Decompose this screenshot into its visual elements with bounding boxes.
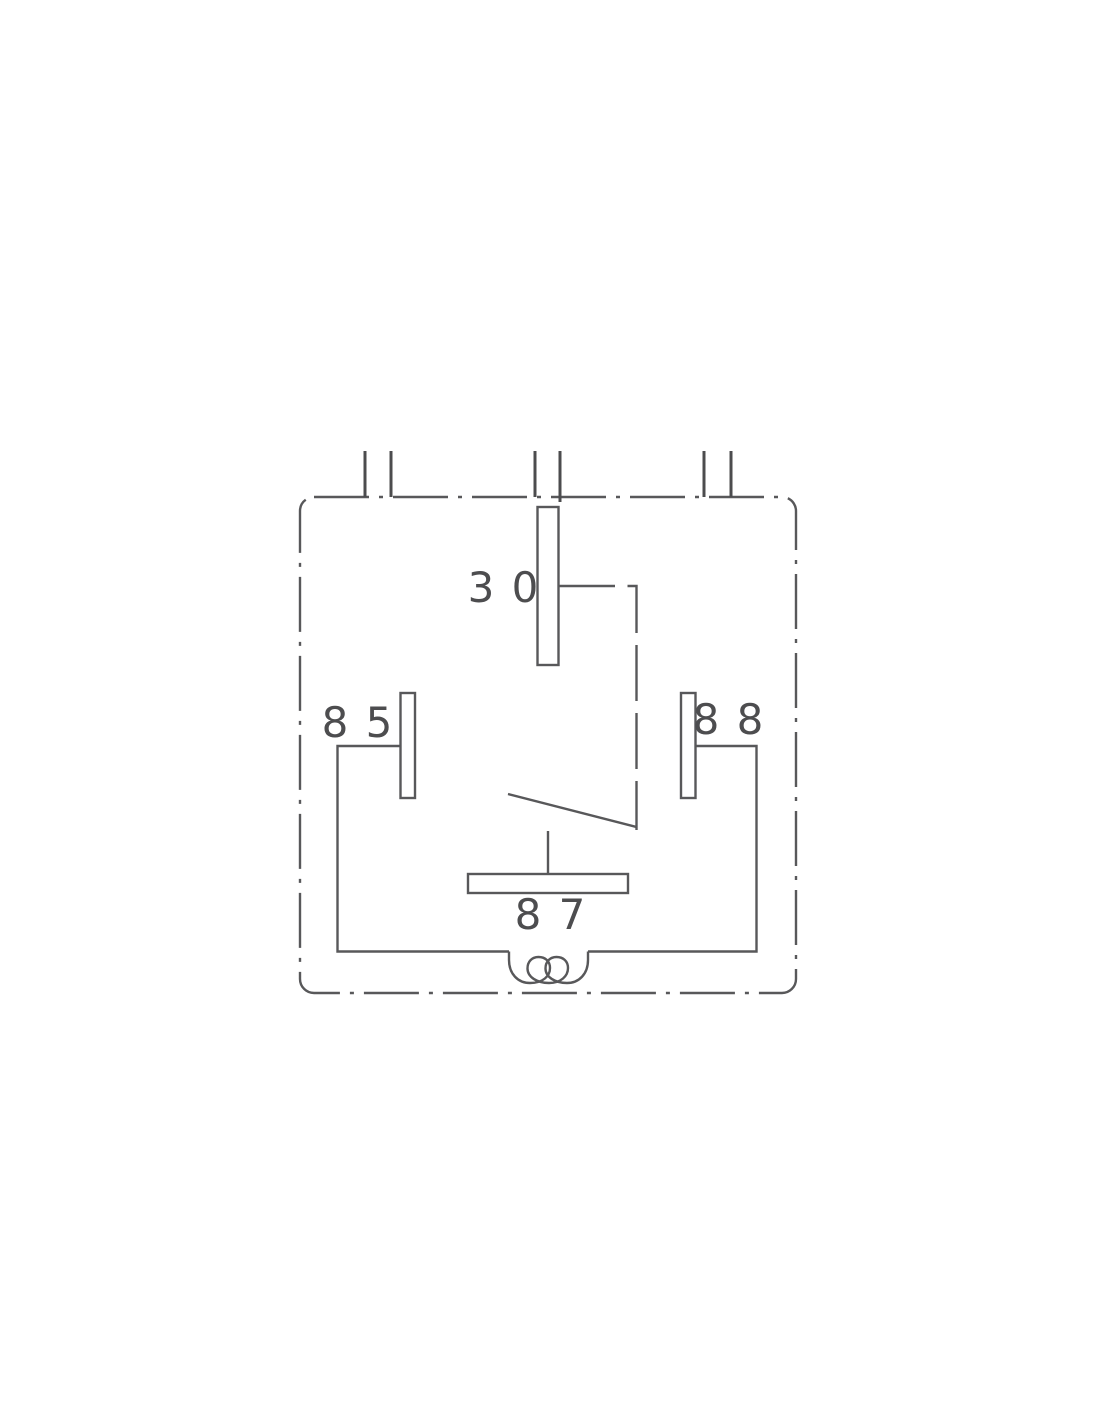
- terminal-85: 8 5: [322, 693, 509, 952]
- pin-stubs: [365, 451, 731, 502]
- terminal-87-label: 8 7: [515, 890, 588, 939]
- terminal-87: 8 7: [468, 831, 628, 939]
- terminal-30-label: 3 0: [468, 563, 541, 612]
- terminal-88-coil-wire: [588, 746, 757, 952]
- page: 3 0 8 7 8 5 8 8: [0, 0, 1100, 1422]
- terminal-30: 3 0: [468, 507, 637, 830]
- terminal-85-blade: [401, 693, 416, 798]
- switch-arm: [508, 794, 637, 827]
- relay-wiring-diagram: 3 0 8 7 8 5 8 8: [0, 0, 1100, 1422]
- terminal-85-label: 8 5: [322, 698, 395, 747]
- terminal-30-blade: [538, 507, 559, 665]
- coil-winding: [509, 952, 588, 984]
- terminal-88-label: 8 8: [693, 695, 766, 744]
- terminal-85-coil-wire: [338, 746, 510, 952]
- contact-travel-guide-dashed: [628, 586, 637, 830]
